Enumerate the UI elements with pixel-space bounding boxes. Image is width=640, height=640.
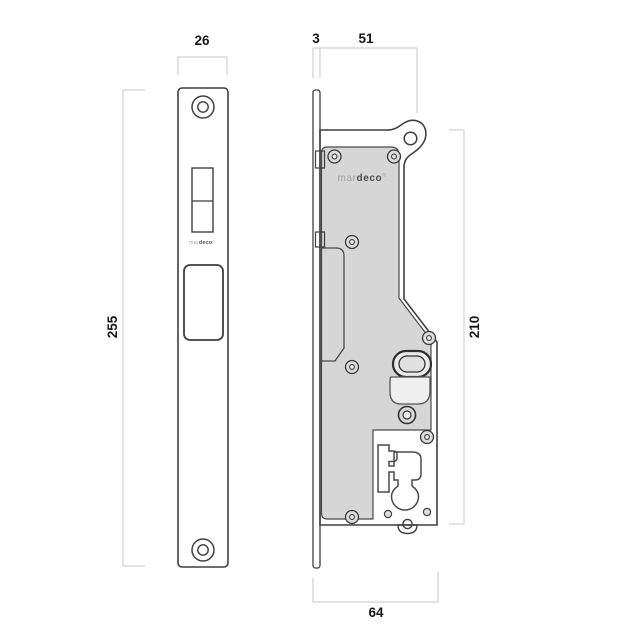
technical-drawing: 26 255 mardeco® (0, 0, 640, 640)
screw-hole-outer (192, 96, 214, 118)
fixing-hole (423, 508, 430, 515)
bottom-fixing-tab (398, 519, 417, 533)
fixing-hole (384, 510, 391, 517)
dim-plate-thickness: 3 (312, 31, 320, 78)
rivet (423, 332, 436, 345)
rivet (328, 150, 341, 163)
brand-front-reg: ® (212, 239, 215, 243)
brand-side-reg: ® (382, 172, 386, 179)
brand-logo-front: mardeco® (189, 239, 215, 246)
oval-slot (393, 351, 431, 377)
dim-label-case-depth: 51 (358, 31, 374, 46)
brand-side-mar: mar (337, 173, 356, 184)
tab-hole (403, 519, 412, 528)
dim-case-depth: 51 (320, 31, 417, 113)
screw-hole-outer (192, 539, 214, 561)
dim-plate-width: 26 (178, 33, 227, 75)
brand-logo-side: mardeco® (337, 172, 386, 184)
front-view: 26 255 mardeco® (105, 33, 228, 567)
dim-label-plate-width: 26 (194, 33, 210, 48)
rivet (346, 361, 359, 374)
latch-housing-panel (322, 248, 345, 361)
brand-side-deco: deco (356, 173, 382, 184)
dim-bracket (449, 130, 464, 524)
dim-bracket (178, 57, 227, 75)
snib-cutout (192, 168, 213, 232)
spindle-hub-inner (403, 411, 411, 419)
latch-cutout (184, 265, 223, 340)
rivet (388, 150, 401, 163)
dim-bracket (313, 572, 438, 602)
screw-hole-inner (198, 102, 208, 112)
dim-plate-height: 255 (105, 90, 145, 566)
dim-label-total-depth: 64 (368, 605, 384, 620)
dim-label-plate-thickness: 3 (312, 31, 320, 46)
oval-slot-inner (399, 356, 425, 372)
dim-bracket (123, 90, 145, 566)
rivet (421, 431, 434, 444)
rivet (346, 236, 359, 249)
dim-label-case-height: 210 (467, 316, 482, 339)
drawing-canvas: 26 255 mardeco® (0, 0, 640, 640)
screw-hole-top (192, 96, 214, 118)
dim-label-plate-height: 255 (105, 315, 120, 338)
snib-aperture (192, 168, 213, 232)
screw-hole-bottom (192, 539, 214, 561)
screw-hole-inner (198, 545, 208, 555)
follower-housing (390, 377, 430, 404)
brand-front-mar: mar (189, 240, 199, 246)
side-view: 3 51 210 64 mardeco® (312, 31, 482, 620)
brand-front-deco: deco (199, 240, 212, 246)
faceplate-front (178, 88, 228, 567)
faceplate-side (313, 90, 320, 568)
dim-total-depth: 64 (313, 572, 438, 620)
cylinder-cutout (378, 445, 421, 510)
spindle-hub (399, 407, 416, 424)
rivet (346, 511, 359, 524)
dim-bracket (320, 48, 417, 113)
dim-case-height: 210 (449, 130, 482, 524)
dim-bracket (313, 48, 320, 78)
lug-hole (404, 132, 417, 145)
